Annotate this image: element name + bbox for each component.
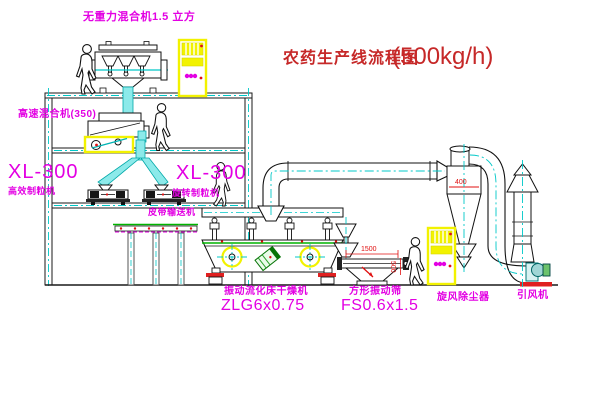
pesticide-production-line-drawing: 农药生产线流程图 (500kg/h) 无重力混合机1.5 立方 高速混合机(35… (0, 0, 600, 403)
label-fan: 引风机 (517, 291, 549, 301)
label-gravity-free-mixer: 无重力混合机1.5 立方 (83, 12, 195, 23)
label-granulator-left-name: 高效制粒机 (8, 187, 56, 196)
control-cabinet-top (179, 40, 206, 96)
label-belt-conveyor: 皮带输送机 (148, 208, 196, 217)
mixer-drop-pipe (123, 87, 133, 114)
label-granulator-right-name: 旋转制粒机 (172, 189, 220, 198)
control-cabinet-ground (428, 228, 455, 284)
label-dryer-name: 振动流化床干燥机 (224, 287, 308, 297)
worker-ground (405, 238, 424, 285)
dim-cyclone: 400 (455, 179, 467, 186)
gravity-free-mixer (88, 42, 168, 94)
label-sieve-name: 方形振动筛 (349, 287, 402, 297)
dim-sieve-length: 1500 (361, 246, 377, 253)
label-cyclone: 旋风除尘器 (437, 293, 490, 303)
granulator-left (86, 185, 130, 205)
label-granulator-right-model: XL-300 (176, 163, 247, 183)
label-sieve-model: FS0.6x1.5 (341, 298, 418, 314)
drawing-capacity: (500kg/h) (392, 45, 493, 69)
dim-sieve-height: 500 (389, 261, 396, 273)
belt-conveyor (113, 225, 198, 286)
label-high-speed-mixer: 高速混合机(350) (18, 110, 96, 120)
label-granulator-left-model: XL-300 (8, 162, 79, 182)
label-dryer-model: ZLG6x0.75 (221, 298, 305, 314)
worker-second-floor (152, 104, 171, 151)
